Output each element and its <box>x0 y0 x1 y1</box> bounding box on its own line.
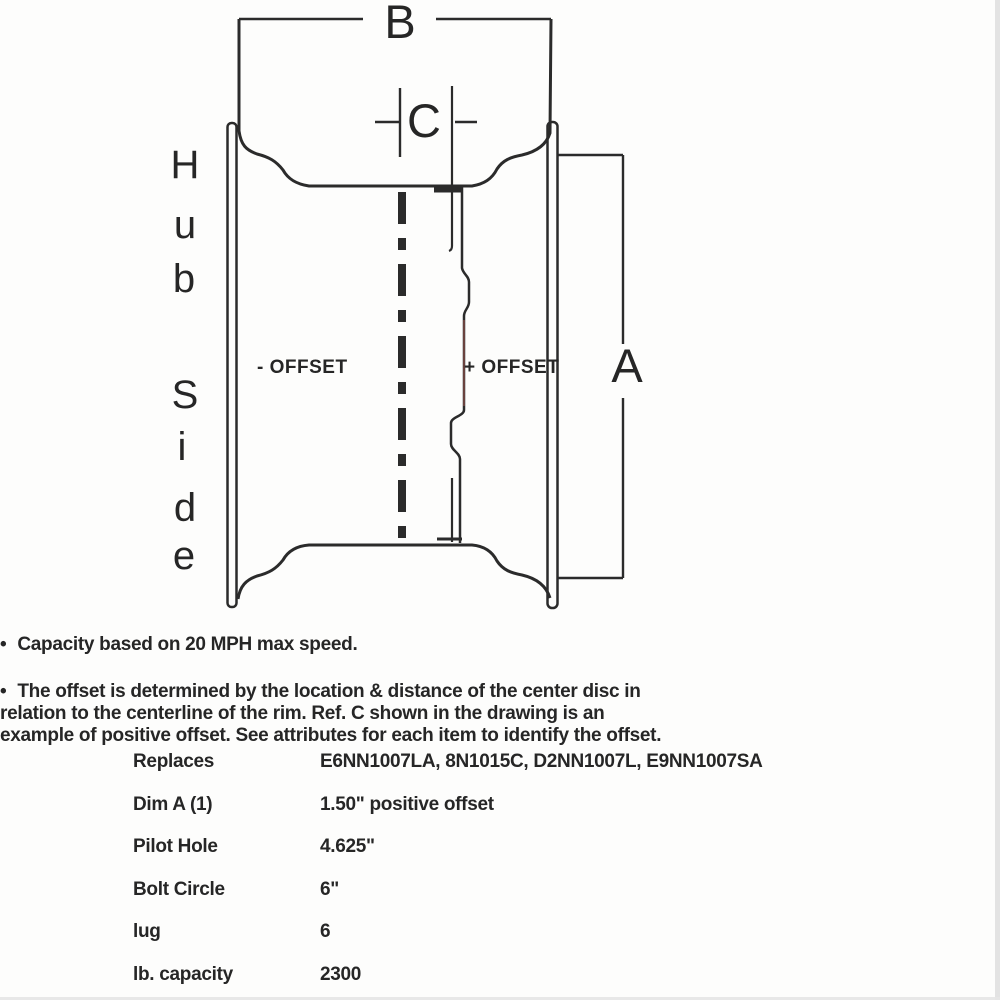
note-offset-line2: relation to the centerline of the rim. R… <box>0 703 604 724</box>
spec-label: Bolt Circle <box>133 879 320 901</box>
svg-text:i: i <box>178 425 187 469</box>
spec-label: Dim A (1) <box>133 794 320 816</box>
hub-side-label: H u b S i d e <box>171 143 200 578</box>
spec-row-lb-capacity: lb. capacity 2300 <box>133 964 873 1000</box>
left-flange <box>228 123 237 607</box>
spec-row-dim-a: Dim A (1) 1.50" positive offset <box>133 794 873 837</box>
spec-value: 4.625" <box>320 836 873 858</box>
spec-table: Replaces E6NN1007LA, 8N1015C, D2NN1007L,… <box>133 751 873 1000</box>
spec-value: 1.50" positive offset <box>320 794 873 816</box>
spec-row-replaces: Replaces E6NN1007LA, 8N1015C, D2NN1007L,… <box>133 751 873 794</box>
negative-offset-label: - OFFSET <box>257 357 348 378</box>
spec-value: 6" <box>320 879 873 901</box>
dim-c-label: C <box>407 94 441 147</box>
note-offset-line3: example of positive offset. See attribut… <box>0 725 661 746</box>
spec-value: 6 <box>320 921 873 943</box>
note-offset-line1: The offset is determined by the location… <box>17 681 640 702</box>
spec-label: lug <box>133 921 320 943</box>
positive-offset-label: + OFFSET <box>464 357 559 378</box>
svg-text:u: u <box>174 203 196 247</box>
spec-value: 2300 <box>320 964 873 986</box>
spec-label: Replaces <box>133 751 320 773</box>
note-capacity: •Capacity based on 20 MPH max speed. <box>0 634 357 656</box>
note-capacity-text: Capacity based on 20 MPH max speed. <box>17 634 357 655</box>
spec-row-pilot-hole: Pilot Hole 4.625" <box>133 836 873 879</box>
dim-a-label: A <box>611 339 643 392</box>
spec-label: lb. capacity <box>133 964 320 986</box>
note-offset: •The offset is determined by the locatio… <box>0 681 661 747</box>
bullet-icon: • <box>0 681 6 702</box>
bullet-icon: • <box>0 634 6 655</box>
svg-text:b: b <box>173 257 195 301</box>
spec-label: Pilot Hole <box>133 836 320 858</box>
spec-row-lug: lug 6 <box>133 921 873 964</box>
rim-cross-section-diagram: B C <box>0 0 1000 630</box>
svg-text:S: S <box>172 373 199 417</box>
spec-row-bolt-circle: Bolt Circle 6" <box>133 879 873 922</box>
rim-bottom-profile <box>238 545 550 599</box>
dim-b-label: B <box>384 0 415 48</box>
image-right-edge <box>995 0 1000 1000</box>
svg-text:H: H <box>171 143 200 187</box>
svg-text:d: d <box>174 486 196 530</box>
center-disc <box>434 86 469 543</box>
svg-text:e: e <box>173 534 195 578</box>
wheel-rim-spec-sheet: B C <box>0 0 1000 1000</box>
spec-value: E6NN1007LA, 8N1015C, D2NN1007L, E9NN1007… <box>320 751 873 773</box>
